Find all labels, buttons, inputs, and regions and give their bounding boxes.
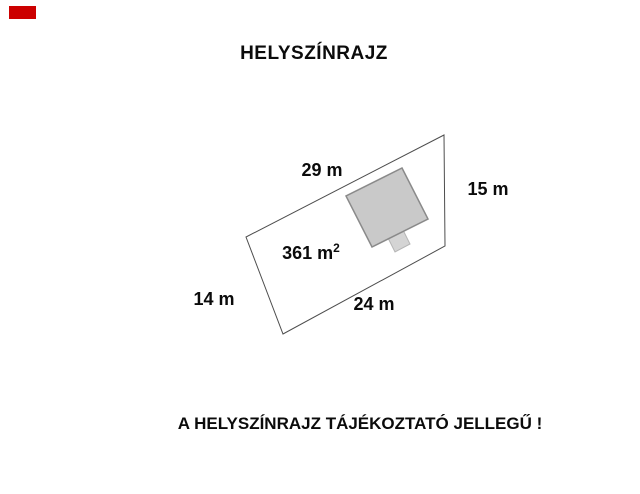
site-plan-page: HELYSZÍNRAJZ 29 m 15 m 361 m2 14 m 24 m … (0, 0, 640, 494)
dimension-label-bottom: 24 m (353, 294, 394, 316)
dimension-label-top: 29 m (301, 160, 342, 182)
building-footprint (346, 168, 428, 247)
parcel-area-label: 361 m2 (282, 243, 340, 265)
dimension-label-left: 14 m (193, 289, 234, 311)
disclaimer-text: A HELYSZÍNRAJZ TÁJÉKOZTATÓ JELLEGŰ ! (178, 414, 543, 434)
parcel-area-superscript: 2 (333, 241, 340, 255)
dimension-label-right: 15 m (467, 179, 508, 201)
parcel-area-value: 361 m (282, 243, 333, 263)
parcel-boundary (246, 135, 445, 334)
